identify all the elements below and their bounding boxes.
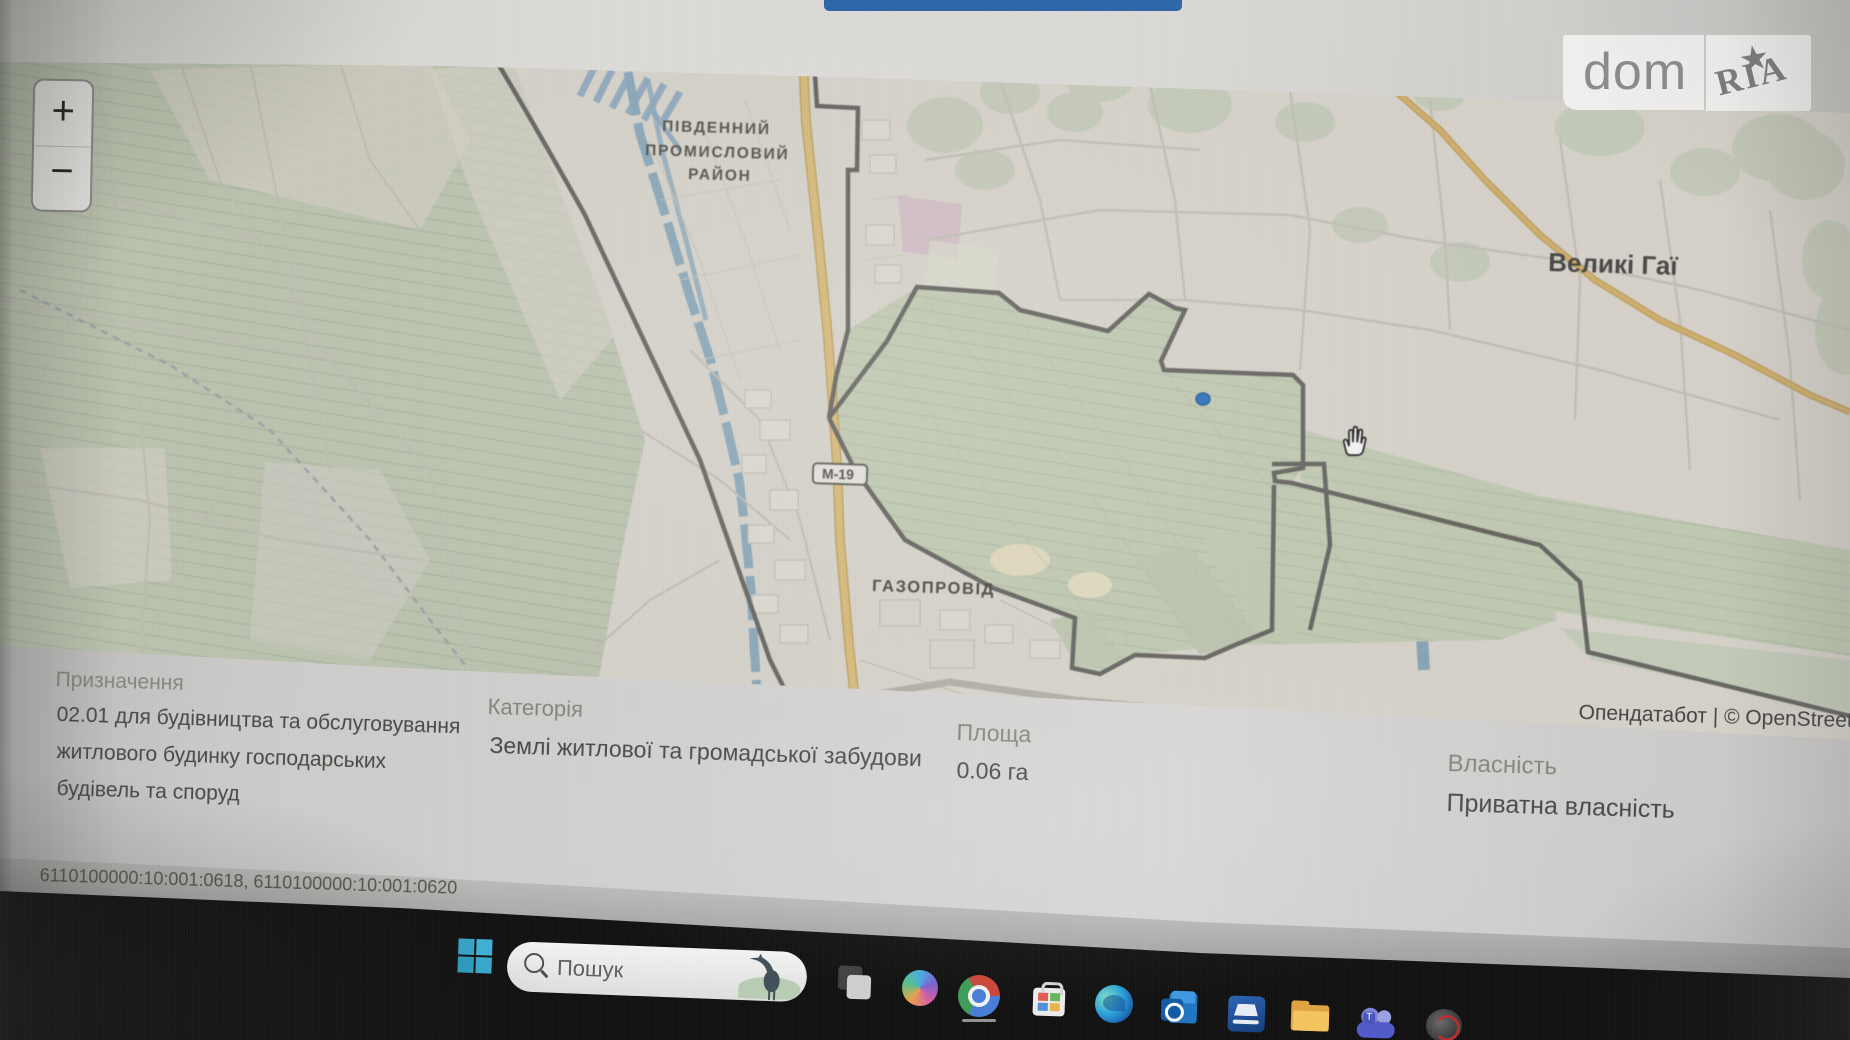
svg-text:М-19: М-19 xyxy=(822,465,855,482)
svg-text:Великі Гаї: Великі Гаї xyxy=(1548,247,1679,281)
svg-text:РАЙОН: РАЙОН xyxy=(688,165,752,185)
svg-text:ПІВДЕННИЙ: ПІВДЕННИЙ xyxy=(662,117,771,138)
svg-text:ГАЗОПРОВІД: ГАЗОПРОВІД xyxy=(872,577,995,599)
